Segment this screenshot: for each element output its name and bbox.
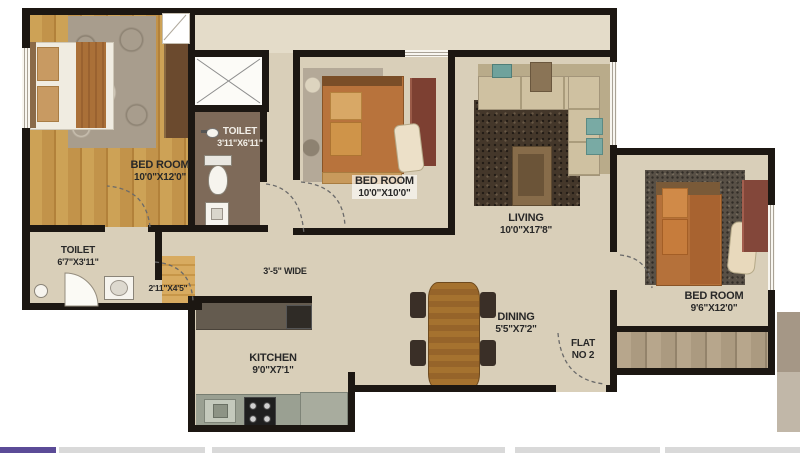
chapter-segment[interactable] [515,447,660,453]
bedroom3-label: BED ROOM 9'6"X12'0" [654,290,774,314]
living-label: LIVING 10'0"X17'8" [466,212,586,236]
bedroom1-dims: 10'0"X12'0" [100,172,220,184]
door-arc-bedroom1 [107,186,150,227]
toilet-top-label: TOILET 3'11"X6'11" [210,126,270,148]
bedroom3-name: BED ROOM [654,290,774,303]
toilet-top-name: TOILET [210,126,270,138]
notch-diagonal-line [164,15,186,40]
living-name: LIVING [466,212,586,225]
toilet-left-dims: 6'7"X3'11" [38,257,118,267]
kitchen-label: KITCHEN 9'0"X7'1" [233,352,313,376]
toilet-left-label: TOILET 6'7"X3'11" [38,245,118,267]
door-arc-lobby [155,262,193,301]
annotations-overlay [0,0,800,455]
living-dims: 10'0"X17'8" [466,225,586,237]
chapter-segment[interactable] [212,447,505,453]
bedroom2-dims: 10'0"X10'0" [355,188,414,200]
dining-name: DINING [488,311,544,324]
flat-number-line1: FLAT [558,338,608,350]
toilet-left-door-leaf [65,273,98,306]
kitchen-dims: 9'0"X7'1" [233,365,313,377]
dining-dims: 5'5"X7'2" [488,324,544,336]
chapter-segment[interactable] [59,447,205,453]
bedroom3-dims: 9'6"X12'0" [654,303,774,315]
door-arc-bedroom2 [301,182,345,226]
toilet-top-dims: 3'11"X6'11" [210,138,270,148]
bedroom2-label: BED ROOM 10'0"X10'0" [352,175,417,199]
bedroom1-label: BED ROOM 10'0"X12'0" [100,159,220,183]
floor-plan-canvas: BED ROOM 10'0"X12'0" TOILET 3'11"X6'11" … [0,0,800,455]
corridor-width-label: 3'-5" WIDE [245,266,325,276]
lobby-dims-label: 2'11"X4'5" [140,284,196,294]
toilet-left-name: TOILET [38,245,118,257]
kitchen-name: KITCHEN [233,352,313,365]
door-arc-toilet-top [266,184,304,235]
duct-cross-icon [197,59,260,103]
bedroom2-name: BED ROOM [355,175,414,188]
flat-number-line2: NO 2 [558,350,608,362]
chapter-segment-played[interactable] [0,447,56,453]
flat-number-label: FLAT NO 2 [558,338,608,361]
chapter-segment[interactable] [665,447,800,453]
dining-label: DINING 5'5"X7'2" [488,311,544,335]
bedroom1-name: BED ROOM [100,159,220,172]
door-arc-bedroom3 [620,255,652,288]
